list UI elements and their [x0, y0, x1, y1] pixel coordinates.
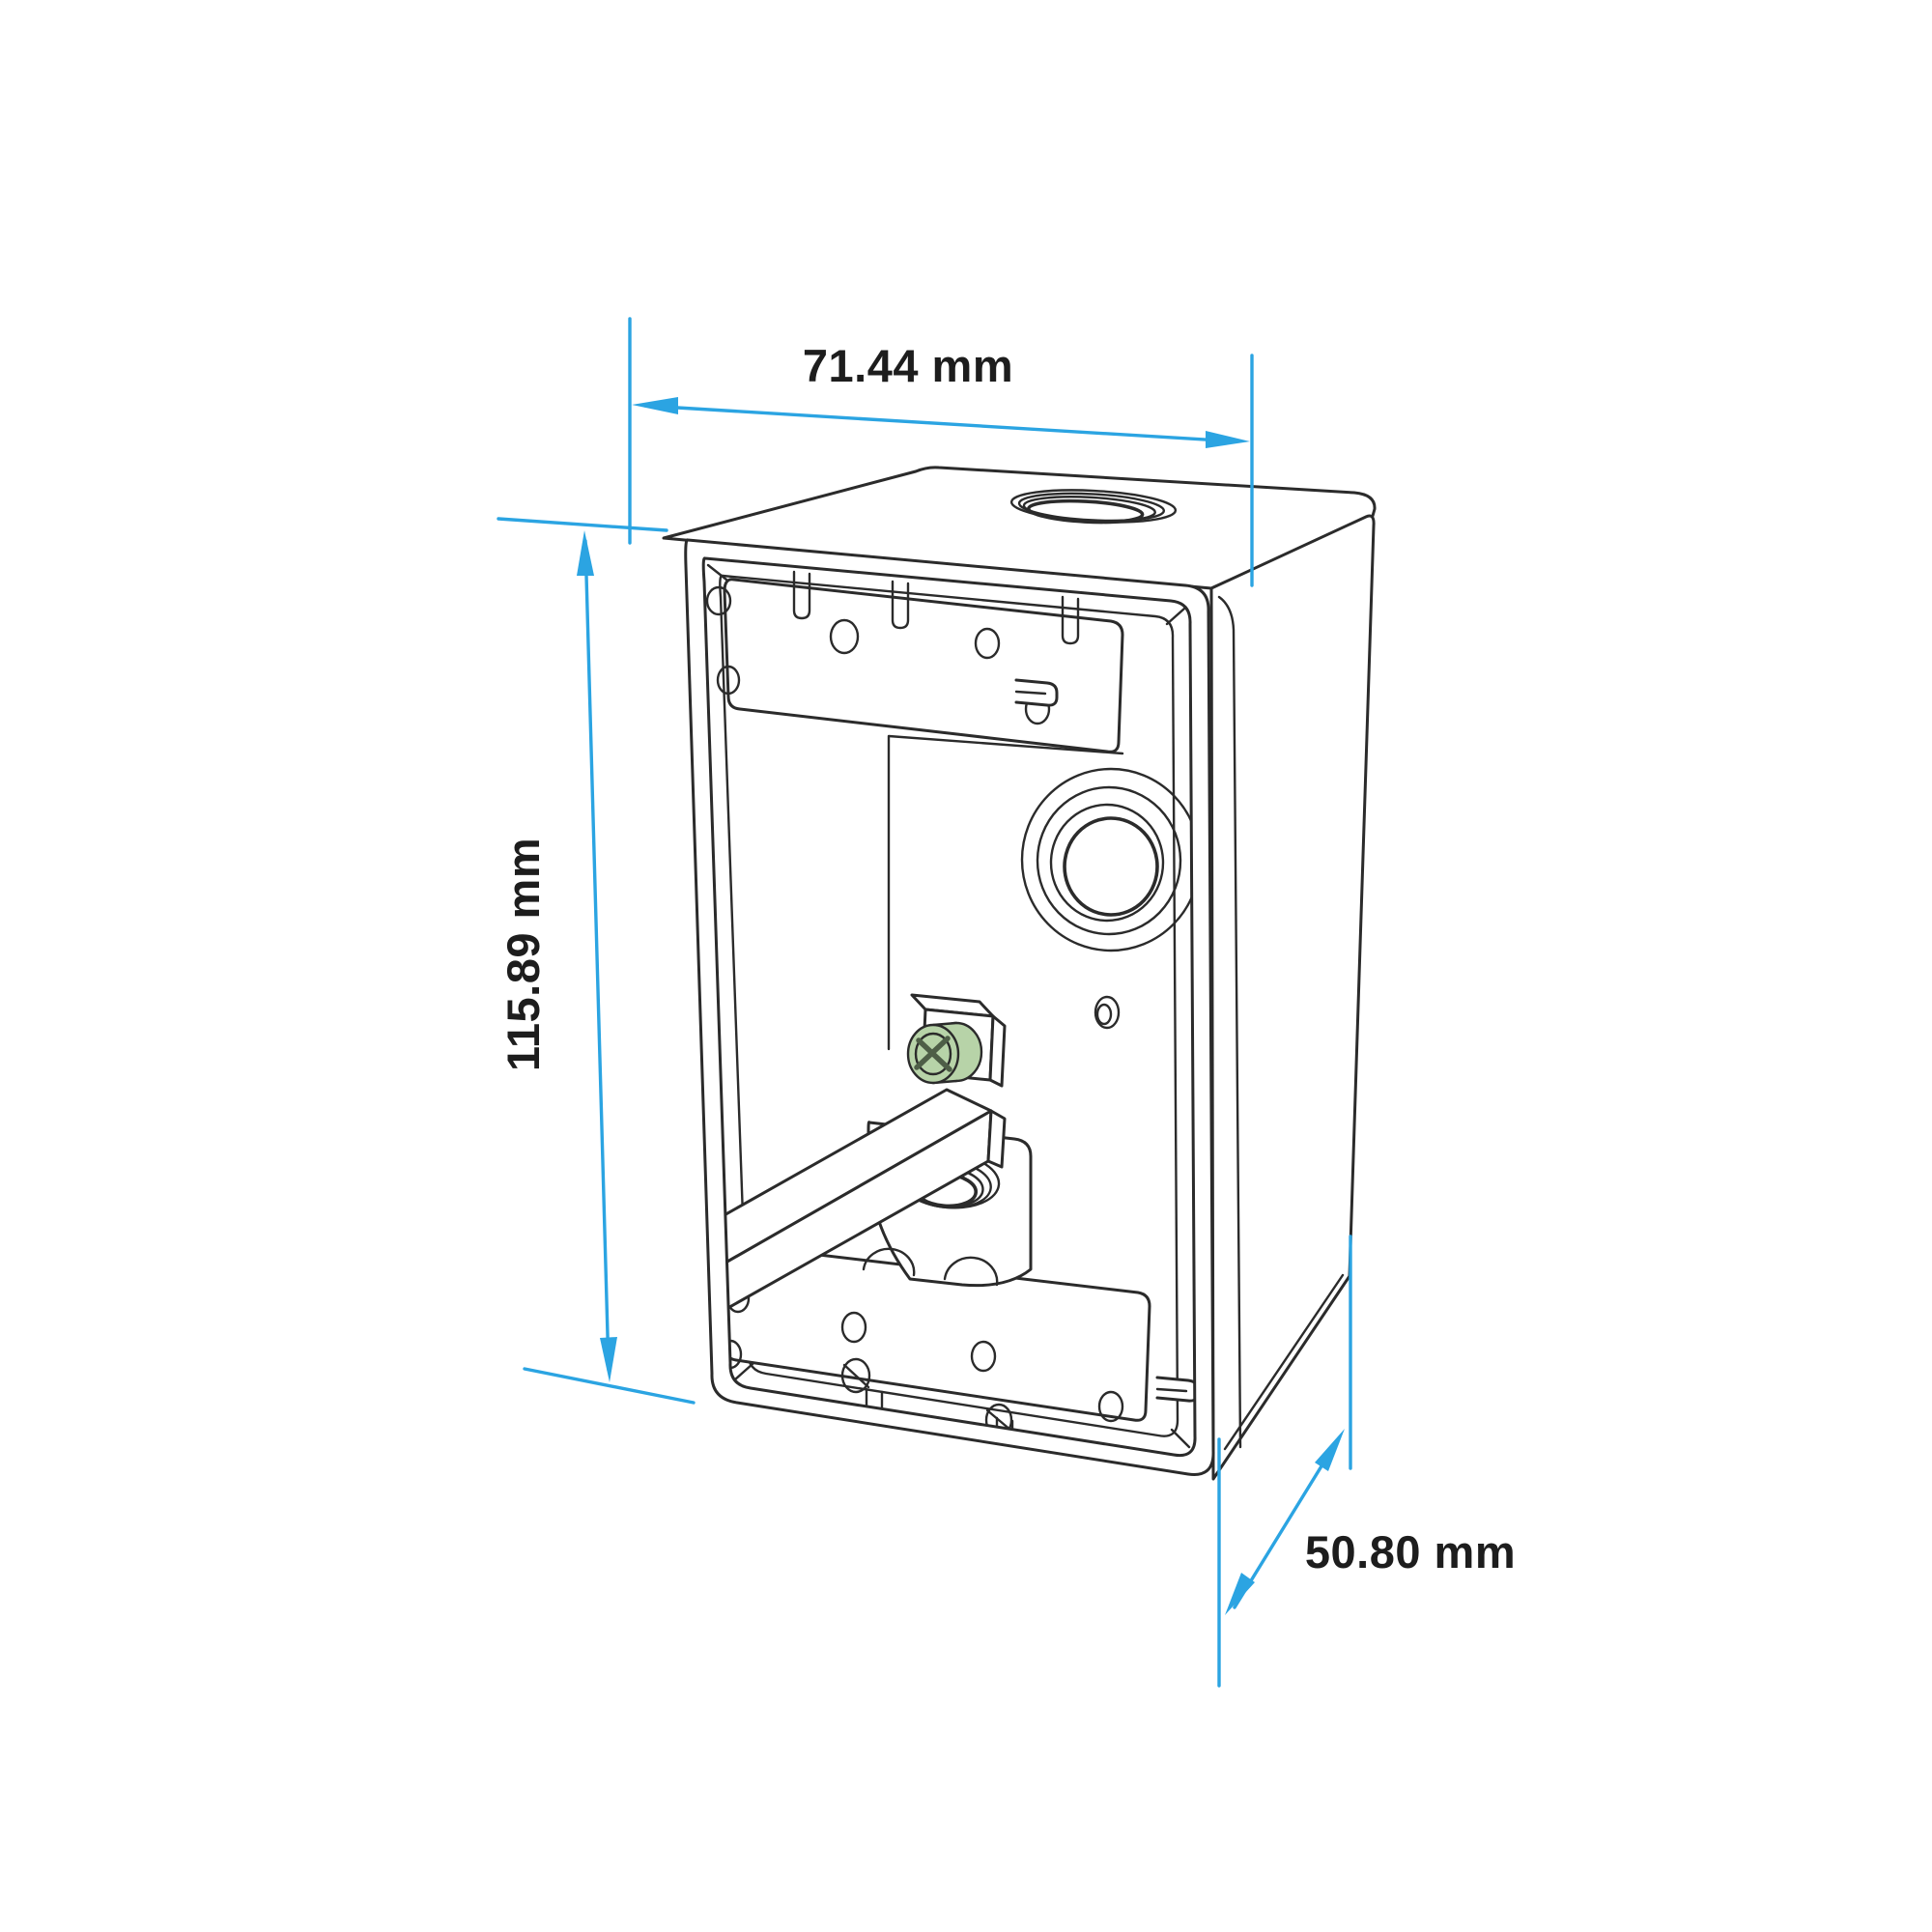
arrow-left-icon	[632, 397, 678, 414]
box-body	[661, 468, 1375, 1479]
green-grounding-screw	[908, 995, 1005, 1086]
box-interior	[661, 565, 1200, 1458]
height-dimension-line	[585, 541, 609, 1370]
arrow-up-icon	[577, 530, 594, 576]
height-extension-line-top	[498, 519, 667, 530]
top-mounting-plate	[661, 572, 1122, 752]
height-dimension: 115.89 mm	[497, 519, 694, 1403]
width-dimension-label: 71.44 mm	[803, 340, 1013, 391]
depth-dimension-label: 50.80 mm	[1305, 1526, 1516, 1577]
arrow-down-icon	[600, 1337, 617, 1382]
technical-drawing-page: 71.44 mm 115.89 mm 50.80 mm	[0, 0, 1932, 1932]
width-dimension-line	[645, 406, 1236, 441]
arrow-right-icon	[1206, 431, 1250, 448]
outlet-box-drawing: 71.44 mm 115.89 mm 50.80 mm	[0, 0, 1932, 1932]
arrow-upper-right-icon	[1315, 1429, 1345, 1471]
right-wall-hole	[1095, 997, 1119, 1028]
height-dimension-label: 115.89 mm	[497, 838, 549, 1071]
